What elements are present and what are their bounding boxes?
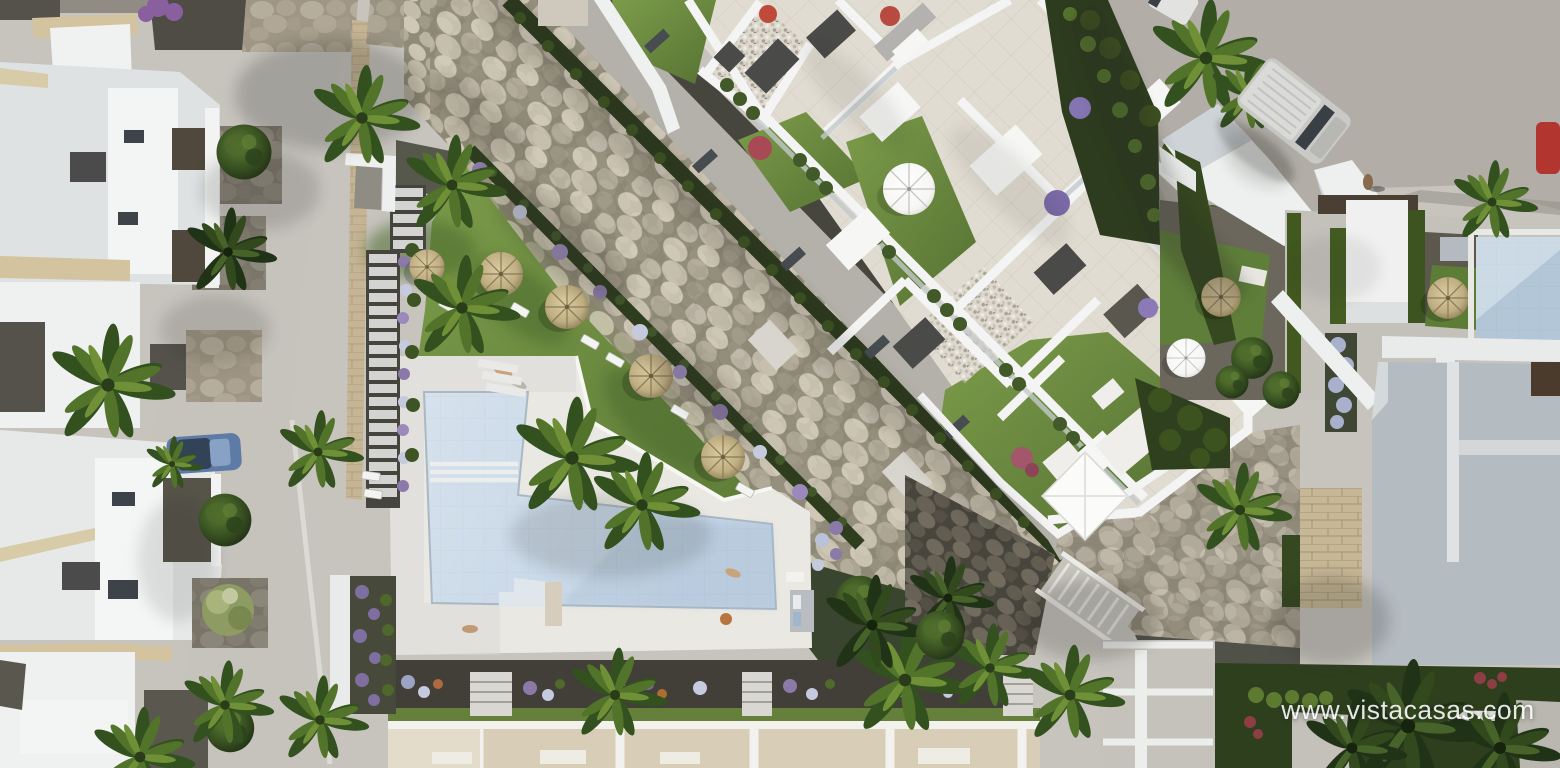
svg-text:www.vistacasas.com: www.vistacasas.com — [1280, 695, 1534, 725]
